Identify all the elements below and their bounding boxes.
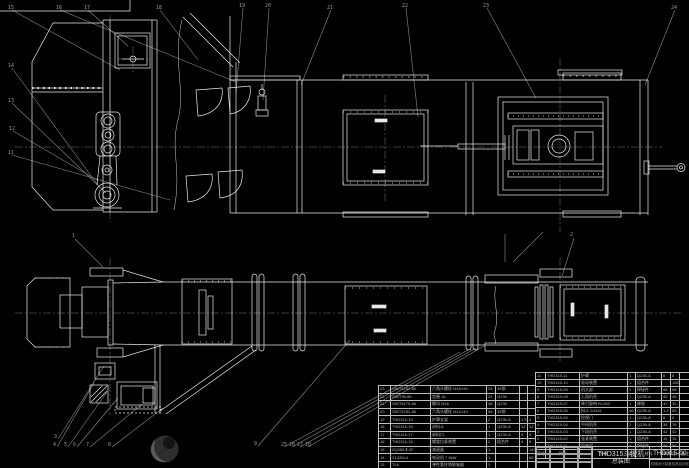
bom-row: 22 GB/T95-85 垫圈 16 24 Q235 bbox=[379, 393, 536, 401]
bom-cell-w1: 1.2 bbox=[662, 408, 671, 415]
bom-cell-notes bbox=[680, 408, 689, 415]
bom-cell-seq: 6 bbox=[536, 408, 546, 415]
callout-label: 15 bbox=[8, 6, 14, 11]
bom-cell-code: THD315-07 bbox=[546, 401, 580, 408]
callout-label: 2 bbox=[570, 233, 573, 238]
bom-cell-qty: 1 bbox=[628, 387, 636, 394]
bom-cell-notes bbox=[680, 373, 689, 380]
bom-row: 10 THD315-10 驱动装置 1 组合件 156 bbox=[536, 380, 689, 387]
bom-row: 23 GB/T5782-86 六角头螺栓 M16×50 24 35钢 bbox=[379, 386, 536, 394]
bom-cell-seq: 23 bbox=[379, 386, 391, 394]
bom-cell-qty: 1 bbox=[487, 431, 496, 439]
bom-cell-name: 护罩 bbox=[580, 373, 628, 380]
bom-cell-seq: 9 bbox=[536, 387, 546, 394]
callout-label: 16 bbox=[56, 6, 62, 11]
bom-cell-w1: 4 bbox=[520, 439, 528, 447]
bom-cell-code: THD315-16 bbox=[391, 439, 431, 447]
bom-cell-name: 上段机壳 bbox=[580, 394, 628, 401]
bom-cell-material bbox=[496, 461, 520, 468]
bom-row: 3 THD315-03 下段机壳 1 Q235-A 42 42 bbox=[536, 429, 689, 436]
bom-cell-w2: 6 bbox=[671, 415, 680, 422]
bom-row: 6 THD315-06 料斗 Zd315 46 Q235-A 1.2 55 bbox=[536, 408, 689, 415]
callout-label: 26 bbox=[289, 443, 295, 448]
bom-cell-material: Q235-A bbox=[636, 394, 662, 401]
drive-unit-plan bbox=[90, 363, 161, 413]
belt-fastener bbox=[256, 84, 268, 116]
bom-cell-code: THD315-10 bbox=[546, 380, 580, 387]
cad-canvas: 15 16 17 18 19 20 21 22 23 24 14 13 12 1… bbox=[0, 0, 689, 468]
watermark-moon-logo bbox=[151, 436, 179, 463]
bom-cell-qty: 1 bbox=[487, 423, 496, 431]
bom-cell-qty: 1 bbox=[487, 461, 496, 468]
bom-cell-code: GB/T5782-86 bbox=[391, 408, 431, 416]
callout-label: 1 bbox=[72, 234, 75, 239]
bom-row: 15 ZQ350-Ⅱ-2F 减速器 1 140 bbox=[379, 446, 536, 454]
bom-cell-w1 bbox=[520, 393, 528, 401]
callout-label: 28 bbox=[305, 443, 311, 448]
drive-chain-assembly bbox=[93, 112, 122, 208]
bom-cell-w1: 1.5 bbox=[520, 416, 528, 424]
sheet-title: 总装图 bbox=[612, 459, 630, 466]
bom-cell-name: 弹性套柱销联轴器 bbox=[431, 461, 487, 468]
bom-cell-code: Y132M-4 bbox=[391, 454, 431, 462]
casing-plan bbox=[163, 274, 648, 351]
bom-cell-material: 35钢 bbox=[496, 386, 520, 394]
bom-cell-name: 减速器 bbox=[431, 446, 487, 454]
bom-cell-qty: 56 bbox=[487, 408, 496, 416]
bom-cell-code: THD315-04 bbox=[546, 422, 580, 429]
bom-row: 19 THD315-19 护罩支架 2 Q235-A 1.5 3 bbox=[379, 416, 536, 424]
bom-cell-name: 螺旋拉紧装置 bbox=[431, 439, 487, 447]
bom-cell-qty: 2 bbox=[628, 422, 636, 429]
bom-cell-w2: 45 bbox=[671, 394, 680, 401]
bom-cell-material: Q235 bbox=[496, 393, 520, 401]
bom-cell-seq: 4 bbox=[536, 422, 546, 429]
bom-cell-seq: 2 bbox=[536, 436, 546, 443]
bom-row: 9 THD315-09 机头部 1 焊接件 98 98 bbox=[536, 387, 689, 394]
callout-label: 6 bbox=[73, 443, 76, 448]
bom-cell-seq: 18 bbox=[379, 423, 391, 431]
bom-cell-w2: 15 bbox=[671, 436, 680, 443]
bom-cell-seq: 16 bbox=[379, 439, 391, 447]
bom-cell-seq: 5 bbox=[536, 415, 546, 422]
bom-cell-material: Q235-A bbox=[636, 408, 662, 415]
bom-cell-qty: 1 bbox=[487, 446, 496, 454]
bom-cell-w2: 42 bbox=[671, 429, 680, 436]
bom-cell-seq: 7 bbox=[536, 401, 546, 408]
title-cell: THD315斗提机 总装图 bbox=[592, 447, 649, 468]
bom-cell-w1 bbox=[520, 446, 528, 454]
buckets bbox=[186, 86, 250, 202]
callout-label: 11 bbox=[8, 151, 14, 156]
bom-cell-w2: 55 bbox=[671, 408, 680, 415]
callout-label: 9 bbox=[254, 442, 257, 447]
bom-cell-material: Q235-A bbox=[496, 416, 520, 424]
bom-cell-seq: 13 bbox=[379, 461, 391, 468]
bom-cell-name: 电动机 7.5kW bbox=[431, 454, 487, 462]
head-plan bbox=[27, 268, 163, 357]
callout-label: 27 bbox=[297, 443, 303, 448]
bom-cell-name: 进料斗 bbox=[431, 423, 487, 431]
bom-cell-qty: 1 bbox=[628, 380, 636, 387]
head-gearbox bbox=[115, 33, 150, 68]
bom-row: 11 THD315-11 护罩 1 Q235-A 8 8 bbox=[536, 373, 689, 380]
callout-label: 25 bbox=[281, 443, 287, 448]
title-block: THD315斗提机 总装图 THD315-00 机械设计制造及其自动化 bbox=[535, 446, 689, 468]
bom-cell-name: 卸料口 bbox=[431, 431, 487, 439]
bom-row: 8 THD315-08 上段机壳 1 Q235-A 45 45 bbox=[536, 394, 689, 401]
bom-cell-seq: 21 bbox=[379, 401, 391, 409]
bom-row: 5 THD315-05 检视门 1 Q235-A 6 6 bbox=[536, 415, 689, 422]
bom-cell-name: 中间机壳 bbox=[580, 422, 628, 429]
bom-cell-name: 下段机壳 bbox=[580, 429, 628, 436]
bom-cell-w1 bbox=[520, 454, 528, 462]
bom-cell-w1 bbox=[520, 386, 528, 394]
frame-corner bbox=[0, 0, 130, 11]
bom-cell-notes bbox=[680, 394, 689, 401]
bom-cell-w2: 8 bbox=[671, 373, 680, 380]
bom-cell-material: 组合件 bbox=[496, 439, 520, 447]
bom-cell-seq: 8 bbox=[536, 394, 546, 401]
callout-label: 22 bbox=[402, 4, 408, 9]
callout-label: 12 bbox=[9, 127, 15, 132]
bom-cell-w1: 8 bbox=[662, 373, 671, 380]
bom-cell-notes bbox=[680, 422, 689, 429]
bom-cell-code: THD315-18 bbox=[391, 423, 431, 431]
bom-cell-w1: 12 bbox=[520, 423, 528, 431]
bom-cell-notes bbox=[680, 429, 689, 436]
bom-cell-code: GB/T95-85 bbox=[391, 393, 431, 401]
bom-cell-qty: 1 bbox=[628, 436, 636, 443]
bom-cell-seq: 20 bbox=[379, 408, 391, 416]
bom-cell-material bbox=[496, 446, 520, 454]
bom-cell-seq: 17 bbox=[379, 431, 391, 439]
bom-cell-w1: 45 bbox=[662, 394, 671, 401]
bom-cell-qty: 24 bbox=[487, 386, 496, 394]
bom-cell-material: 组合件 bbox=[636, 436, 662, 443]
callout-label: 3 bbox=[54, 435, 57, 440]
callout-label: 21 bbox=[327, 6, 333, 11]
bom-cell-qty: 1 bbox=[628, 394, 636, 401]
bom-cell-material: Q235-A bbox=[496, 423, 520, 431]
inspection-door-plan-1 bbox=[182, 279, 232, 344]
bom-cell-material: Q235-A bbox=[496, 431, 520, 439]
bom-cell-w1 bbox=[662, 380, 671, 387]
callout-label: 19 bbox=[239, 4, 245, 9]
bom-row: 13 TL6 弹性套柱销联轴器 1 bbox=[379, 461, 536, 468]
bom-cell-w1: 32 bbox=[662, 401, 671, 408]
bom-cell-material: Q235-A bbox=[636, 429, 662, 436]
inspection-door-plan-2 bbox=[345, 286, 427, 344]
bom-cell-notes bbox=[680, 380, 689, 387]
bom-cell-seq: 19 bbox=[379, 416, 391, 424]
bom-cell-notes bbox=[680, 387, 689, 394]
bom-row: 14 Y132M-4 电动机 7.5kW 1 68 bbox=[379, 454, 536, 462]
product-name: THD315斗提机 bbox=[597, 451, 644, 459]
bom-cell-code: THD315-19 bbox=[391, 416, 431, 424]
bom-cell-qty: 24 bbox=[487, 393, 496, 401]
callout-label: 23 bbox=[483, 4, 489, 9]
bom-cell-w2: 98 bbox=[671, 387, 680, 394]
organization: 机械设计制造及其自动化 bbox=[650, 460, 689, 468]
bom-cell-w2: 76 bbox=[671, 422, 680, 429]
bom-cell-code: THD315-09 bbox=[546, 387, 580, 394]
bom-cell-name: 六角头螺栓 M12×40 bbox=[431, 408, 487, 416]
bom-cell-w2: 156 bbox=[671, 380, 680, 387]
bom-row: 21 GB/T6170-86 螺母 M16 48 Q235 bbox=[379, 401, 536, 409]
bom-cell-w1: 98 bbox=[662, 387, 671, 394]
bom-row: 16 THD315-16 螺旋拉紧装置 2 组合件 4 8 bbox=[379, 439, 536, 447]
bom-cell-material: Q235-A bbox=[636, 415, 662, 422]
bom-cell-qty: 1 bbox=[628, 401, 636, 408]
bom-row: 4 THD315-04 中间机壳 2 Q235-A 38 76 bbox=[536, 422, 689, 429]
bom-cell-code: THD315-06 bbox=[546, 408, 580, 415]
inspection-door-side bbox=[343, 110, 428, 185]
callout-label: 5 bbox=[64, 443, 67, 448]
bom-cell-code: TL6 bbox=[391, 461, 431, 468]
bom-cell-w1: 42 bbox=[662, 429, 671, 436]
head-section bbox=[32, 20, 157, 212]
bom-cell-material: Q235 bbox=[496, 401, 520, 409]
bom-cell-name: 护罩支架 bbox=[431, 416, 487, 424]
callout-label: 14 bbox=[8, 64, 14, 69]
boot-section-side bbox=[420, 70, 648, 215]
bom-cell-code: THD315-02 bbox=[546, 436, 580, 443]
bom-cell-material: 组合件 bbox=[636, 380, 662, 387]
bom-cell-seq: 10 bbox=[536, 380, 546, 387]
bom-cell-code: ZQ350-Ⅱ-2F bbox=[391, 446, 431, 454]
bom-cell-w1: 6 bbox=[662, 415, 671, 422]
bom-cell-seq: 15 bbox=[379, 446, 391, 454]
drawing-number: THD315-00 bbox=[650, 447, 689, 460]
bom-cell-qty: 1 bbox=[628, 429, 636, 436]
bom-cell-material: Q235-A bbox=[636, 422, 662, 429]
bom-row: 20 GB/T5782-86 六角头螺栓 M12×40 56 35钢 bbox=[379, 408, 536, 416]
bom-row: 7 THD315-07 牵引胶带 B=250 1 橡胶 32 32 bbox=[536, 401, 689, 408]
callout-label: 20 bbox=[265, 4, 271, 9]
bom-cell-w2: 32 bbox=[671, 401, 680, 408]
bom-cell-material: 橡胶 bbox=[636, 401, 662, 408]
bom-cell-name: 螺母 M16 bbox=[431, 401, 487, 409]
bom-cell-code: GB/T6170-86 bbox=[391, 401, 431, 409]
bom-row: 2 THD315-02 张紧装置 1 组合件 15 15 bbox=[536, 436, 689, 443]
bom-row: 18 THD315-18 进料斗 1 Q235-A 12 12 bbox=[379, 423, 536, 431]
callout-label: 7 bbox=[86, 443, 89, 448]
bom-cell-notes bbox=[680, 401, 689, 408]
bom-cell-seq: 3 bbox=[536, 429, 546, 436]
bom-cell-qty: 1 bbox=[628, 415, 636, 422]
bom-cell-qty: 46 bbox=[628, 408, 636, 415]
bom-cell-code: GB/T5782-86 bbox=[391, 386, 431, 394]
support-strut bbox=[155, 345, 256, 414]
bom-cell-name: 检视门 bbox=[580, 415, 628, 422]
bom-cell-seq: 11 bbox=[536, 373, 546, 380]
bom-cell-code: THD315-03 bbox=[546, 429, 580, 436]
bom-cell-code: THD315-08 bbox=[546, 394, 580, 401]
callout-label: 24 bbox=[671, 6, 677, 11]
bom-cell-notes bbox=[680, 415, 689, 422]
bom-cell-w1: 9 bbox=[520, 431, 528, 439]
bom-cell-name: 驱动装置 bbox=[580, 380, 628, 387]
bom-cell-name: 张紧装置 bbox=[580, 436, 628, 443]
bom-cell-w1: 15 bbox=[662, 436, 671, 443]
bom-cell-name: 垫圈 16 bbox=[431, 393, 487, 401]
takeup-handle-rod bbox=[644, 161, 685, 174]
callout-label: 13 bbox=[8, 99, 14, 104]
signature-grid bbox=[536, 447, 592, 468]
bom-cell-name: 料斗 Zd315 bbox=[580, 408, 628, 415]
bom-cell-material: 35钢 bbox=[496, 408, 520, 416]
bom-table-left: 23 GB/T5782-86 六角头螺栓 M16×50 24 35钢 22 GB… bbox=[378, 385, 536, 468]
bom-cell-w1 bbox=[520, 461, 528, 468]
bom-cell-qty: 48 bbox=[487, 401, 496, 409]
bom-cell-name: 牵引胶带 B=250 bbox=[580, 401, 628, 408]
bom-cell-code: THD315-11 bbox=[546, 373, 580, 380]
callout-label: 4 bbox=[53, 443, 56, 448]
bom-cell-qty: 1 bbox=[628, 373, 636, 380]
bom-cell-code: THD315-05 bbox=[546, 415, 580, 422]
bom-cell-material: Q235-A bbox=[636, 373, 662, 380]
bom-cell-w1: 38 bbox=[662, 422, 671, 429]
bom-cell-notes bbox=[680, 436, 689, 443]
bom-cell-name: 六角头螺栓 M16×50 bbox=[431, 386, 487, 394]
casing-side bbox=[230, 16, 648, 217]
side-view bbox=[0, 0, 685, 217]
bom-cell-material: 焊接件 bbox=[636, 387, 662, 394]
callout-label: 17 bbox=[84, 6, 90, 11]
bom-cell-w1 bbox=[520, 401, 528, 409]
bom-cell-w1 bbox=[520, 408, 528, 416]
bom-cell-code: THD315-17 bbox=[391, 431, 431, 439]
callout-label: 18 bbox=[156, 6, 162, 11]
bom-cell-qty: 2 bbox=[487, 416, 496, 424]
bom-cell-name: 机头部 bbox=[580, 387, 628, 394]
drawing-number-cell: THD315-00 机械设计制造及其自动化 bbox=[650, 447, 689, 468]
bom-cell-qty: 2 bbox=[487, 439, 496, 447]
bom-row: 17 THD315-17 卸料口 1 Q235-A 9 9 bbox=[379, 431, 536, 439]
bom-cell-qty: 1 bbox=[487, 454, 496, 462]
bom-cell-seq: 22 bbox=[379, 393, 391, 401]
bom-cell-material bbox=[496, 454, 520, 462]
bom-cell-seq: 14 bbox=[379, 454, 391, 462]
callout-label: 8 bbox=[108, 443, 111, 448]
